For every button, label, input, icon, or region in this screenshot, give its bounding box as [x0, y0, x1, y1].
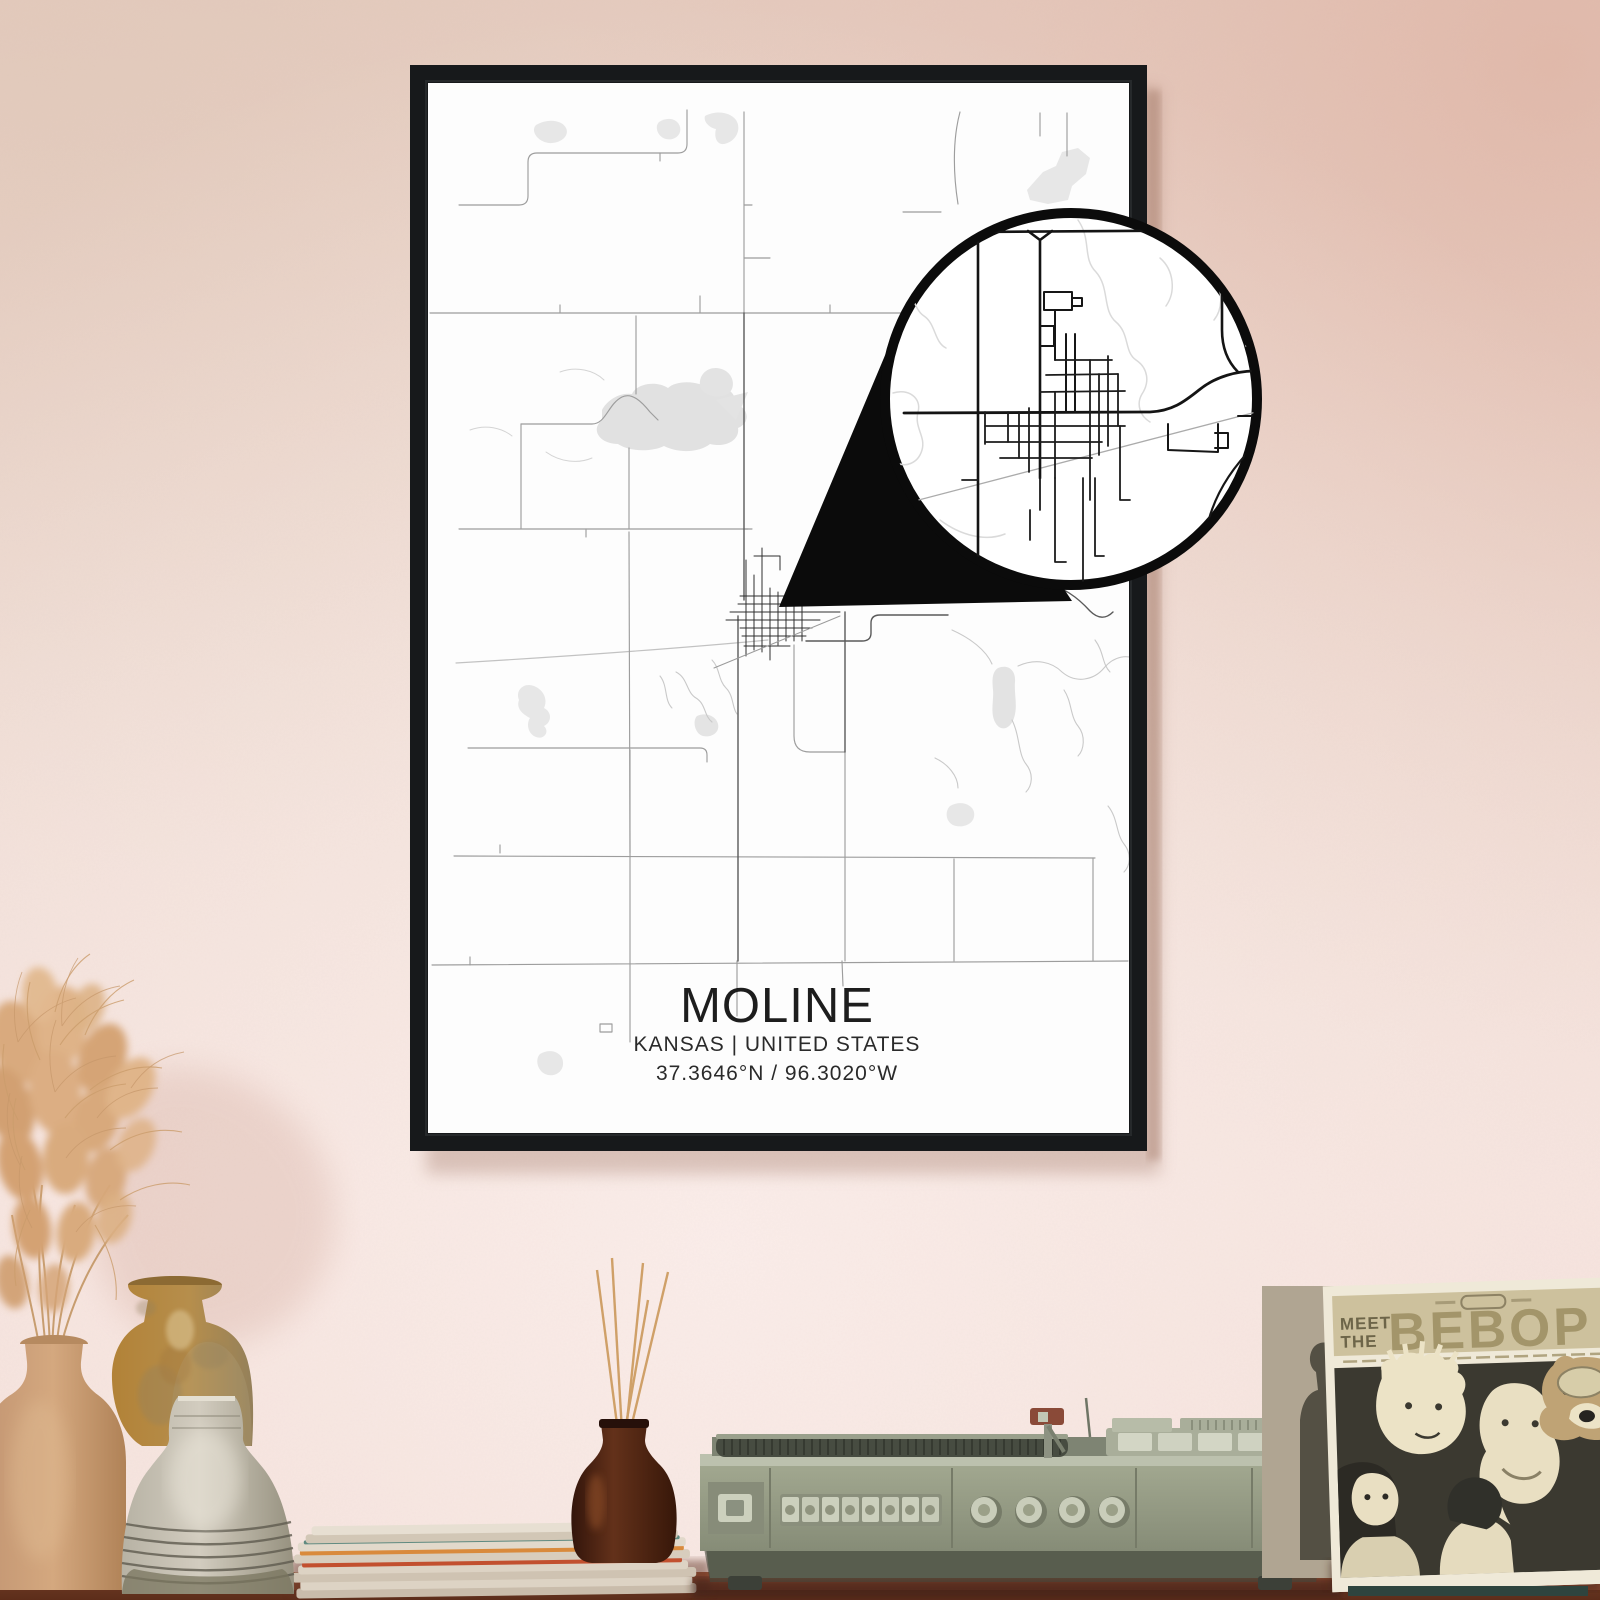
svg-text:THE: THE — [1340, 1332, 1378, 1352]
svg-text:MEET: MEET — [1340, 1313, 1392, 1334]
svg-text:MOLINE: MOLINE — [680, 979, 874, 1033]
svg-text:37.3646°N / 96.3020°W: 37.3646°N / 96.3020°W — [656, 1062, 898, 1085]
svg-text:BEBOP: BEBOP — [1387, 1297, 1592, 1362]
svg-text:KANSAS | UNITED STATES: KANSAS | UNITED STATES — [634, 1033, 921, 1056]
